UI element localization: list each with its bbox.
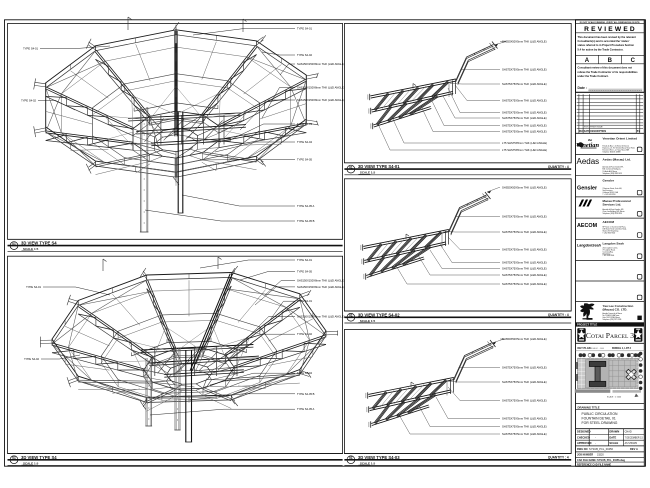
- svg-text:Gensler: Gensler: [603, 179, 615, 183]
- svg-text:APPROVED: APPROVED: [577, 441, 592, 445]
- svg-text:Services Ltd.: Services Ltd.: [603, 203, 622, 207]
- svg-text:Hong Kong: Hong Kong: [603, 253, 611, 255]
- svg-text:TYPE S4-05: TYPE S4-05: [297, 269, 312, 273]
- svg-text:01: 01: [349, 456, 353, 460]
- svg-text:SHS50X50X5mm THK (L&D ANGLE): SHS50X50X5mm THK (L&D ANGLE): [502, 337, 547, 341]
- svg-text:SHS75X75X5mm THK (L&D ANGLE): SHS75X75X5mm THK (L&D ANGLE): [502, 130, 547, 134]
- svg-text:-: -: [14, 461, 15, 465]
- svg-text:Telephone: (853) 81 118888: Telephone: (853) 81 118888: [603, 152, 621, 154]
- svg-text:TYPE S4-05 B: TYPE S4-05 B: [297, 219, 315, 223]
- svg-text:TYPE S4-04: TYPE S4-04: [297, 371, 312, 375]
- svg-text:31520: 31520: [597, 454, 604, 457]
- svg-text:Venetian Orient Limited: Venetian Orient Limited: [603, 137, 638, 141]
- svg-text:SYSUB_PCL_00456: SYSUB_PCL_00456: [589, 447, 613, 451]
- svg-text:SHS75X75X5mm THK (L&D ANGLE): SHS75X75X5mm THK (L&D ANGLE): [502, 99, 547, 103]
- svg-text:TYPE S4-02: TYPE S4-02: [297, 53, 312, 57]
- svg-text:DRAWN: DRAWN: [609, 430, 619, 434]
- svg-text:Gensler: Gensler: [577, 185, 598, 191]
- svg-text:AECOM: AECOM: [577, 223, 598, 229]
- svg-text:DO NOT SCALE DRAWING. VERIFY A: DO NOT SCALE DRAWING. VERIFY ALL DIMENSI…: [580, 21, 641, 24]
- svg-text:AS SHOWN: AS SHOWN: [625, 442, 638, 445]
- svg-text:3D VIEW TYPE S4-02: 3D VIEW TYPE S4-02: [358, 312, 400, 317]
- svg-text:TYPE S4-02: TYPE S4-02: [24, 357, 39, 361]
- svg-text:Causeway Bay,: Causeway Bay,: [603, 251, 614, 253]
- svg-text:SHS75X75X5mm THK (L&D ANGLE): SHS75X75X5mm THK (L&D ANGLE): [502, 399, 547, 403]
- svg-text:AECOM: AECOM: [603, 220, 615, 224]
- svg-text:FOUNTAIN DETAIL 01: FOUNTAIN DETAIL 01: [582, 417, 616, 421]
- svg-text:QUANTITY : 4: QUANTITY : 4: [548, 313, 569, 317]
- svg-text:SCALE 1:5: SCALE 1:5: [23, 247, 39, 251]
- svg-text:SHS75X75X5mm THK (L&D ANGLE): SHS75X75X5mm THK (L&D ANGLE): [502, 282, 547, 286]
- svg-text:FOR STEEL DRAWING: FOR STEEL DRAWING: [582, 421, 618, 425]
- svg-text:SHS150X150X8mm THK (L&D ANGLE): SHS150X150X8mm THK (L&D ANGLE): [297, 315, 345, 319]
- svg-text:01: 01: [349, 165, 353, 169]
- svg-text:SCALE 1:5: SCALE 1:5: [360, 171, 376, 175]
- svg-text:DESCRIPTION: DESCRIPTION: [590, 131, 606, 133]
- svg-text:TYPE S4-01: TYPE S4-01: [297, 26, 312, 30]
- svg-text:T +852 3922 9000: T +852 3922 9000: [603, 233, 616, 235]
- svg-text:TYPE S4-04: TYPE S4-04: [297, 140, 312, 144]
- svg-text:B: B: [608, 58, 613, 64]
- svg-text:C: C: [631, 58, 636, 64]
- svg-text:TYPE S4-03: TYPE S4-03: [297, 122, 312, 126]
- svg-text:SHS150X150X8mm THK (L&D ANGLE): SHS150X150X8mm THK (L&D ANGLE): [297, 86, 345, 90]
- svg-text:Langdon Seah: Langdon Seah: [603, 241, 624, 245]
- svg-text:Telephone: (853) 2833 3023: Telephone: (853) 2833 3023: [603, 173, 622, 175]
- svg-text:Date :: Date :: [578, 86, 587, 90]
- svg-text:TYPE S4-05 B: TYPE S4-05 B: [297, 392, 315, 396]
- svg-text:SCALE 1:5: SCALE 1:5: [360, 319, 376, 323]
- svg-text:REV A: REV A: [630, 447, 638, 451]
- svg-text:(Macau) CO. LTD.: (Macau) CO. LTD.: [603, 307, 628, 311]
- svg-text:LangdonSeah: LangdonSeah: [577, 244, 602, 248]
- svg-text:01: 01: [12, 242, 16, 246]
- svg-text:QUANTITY : 4: QUANTITY : 4: [548, 165, 569, 169]
- svg-text:L75 SHS75X5mm THK (L&D ANGLE): L75 SHS75X5mm THK (L&D ANGLE): [502, 141, 547, 145]
- svg-text:L75 SHS75X5mm THK (L&D ANGLE): L75 SHS75X5mm THK (L&D ANGLE): [502, 148, 547, 152]
- svg-text:SHS75X75X5mm THK (L&D ANGLE): SHS75X75X5mm THK (L&D ANGLE): [502, 124, 547, 128]
- svg-text:REFERENCE CAD FILE NAME: REFERENCE CAD FILE NAME: [577, 463, 612, 466]
- svg-text:TYPE S4-01: TYPE S4-01: [297, 299, 312, 303]
- svg-text:DATE: DATE: [609, 435, 616, 439]
- svg-text:TYPE S4-01: TYPE S4-01: [23, 47, 38, 51]
- svg-text:SHS150X150X8mm THK (L&D ANGLE): SHS150X150X8mm THK (L&D ANGLE): [297, 279, 345, 283]
- svg-text:SHS75X75X5mm THK (L&D ANGLE): SHS75X75X5mm THK (L&D ANGLE): [502, 425, 547, 429]
- svg-text:SHS150X150X8mm THK (L&D ANGLE): SHS150X150X8mm THK (L&D ANGLE): [297, 285, 345, 289]
- svg-text:SHS150X150X8mm THK (L&D ANGLE): SHS150X150X8mm THK (L&D ANGLE): [297, 98, 345, 102]
- svg-text:-: -: [350, 461, 351, 465]
- svg-text:01: 01: [12, 456, 16, 460]
- svg-text:5.4 for action by the Trade Co: 5.4 for action by the Trade Contractor.: [578, 47, 624, 51]
- svg-text:Telephone: (853) 2878 3396: Telephone: (853) 2878 3396: [603, 213, 622, 215]
- svg-text:Telephone: (853) 2871 5339: Telephone: (853) 2871 5339: [603, 319, 622, 321]
- svg-text:REVIEWED: REVIEWED: [584, 26, 637, 33]
- svg-text:DWG NO: DWG NO: [577, 448, 588, 451]
- svg-text:CHAD: CHAD: [625, 431, 632, 434]
- svg-text:SHS75X75X5mm THK (L&D ANGLE): SHS75X75X5mm THK (L&D ANGLE): [502, 267, 547, 271]
- svg-text:TYPE S4-01: TYPE S4-01: [297, 258, 312, 262]
- svg-text:TYPE S4-02: TYPE S4-02: [21, 98, 36, 102]
- svg-text:T +1 415 433 3700: T +1 415 433 3700: [603, 194, 616, 196]
- svg-text:DRAWING TITLE: DRAWING TITLE: [578, 405, 600, 409]
- svg-text:SCALE 1:5: SCALE 1:5: [360, 461, 376, 465]
- svg-text:China Law Building 16/F, Macau: China Law Building 16/F, Macau: [603, 211, 625, 213]
- svg-text:SHS50X50X5mm THK (L&D ANGLE): SHS50X50X5mm THK (L&D ANGLE): [502, 186, 547, 190]
- svg-text:Aedas: Aedas: [577, 157, 600, 166]
- svg-text:Aedas (Macau) Ltd.: Aedas (Macau) Ltd.: [603, 157, 632, 161]
- svg-text:SCALE 1:5: SCALE 1:5: [23, 461, 39, 465]
- svg-text:SCALE : 1:1000: SCALE : 1:1000: [607, 396, 622, 399]
- svg-text:3D VIEW TYPE S4: 3D VIEW TYPE S4: [21, 241, 57, 246]
- svg-text:This document has been revised: This document has been revised by the re…: [578, 35, 636, 39]
- svg-text:SHS75X75X5mm THK (L&D ANGLE): SHS75X75X5mm THK (L&D ANGLE): [502, 261, 547, 265]
- svg-text:TYPE S4-05 A: TYPE S4-05 A: [297, 407, 315, 411]
- svg-text:01: 01: [349, 314, 353, 318]
- svg-text:SHS75X75X5mm THK (L&D ANGLE): SHS75X75X5mm THK (L&D ANGLE): [502, 215, 547, 219]
- svg-text:SHS75X75X5mm THK (L&D ANGLE): SHS75X75X5mm THK (L&D ANGLE): [502, 82, 547, 86]
- svg-text:relieve the Trade Contractor o: relieve the Trade Contractor of its resp…: [578, 70, 639, 74]
- svg-text:SHS75X75X5mm THK (L&D ANGLE): SHS75X75X5mm THK (L&D ANGLE): [502, 380, 547, 384]
- svg-text:SHS75X75X5mm THK (L&D ANGLE): SHS75X75X5mm THK (L&D ANGLE): [502, 248, 547, 252]
- svg-text:PROJECT TITLE: PROJECT TITLE: [577, 323, 597, 327]
- svg-text:JOB NUMBER: JOB NUMBER: [577, 454, 593, 457]
- svg-text:PARCEL 1, LOT 2: PARCEL 1, LOT 2: [612, 347, 632, 350]
- svg-text:SHS75X75X5mm THK (L&D ANGLE): SHS75X75X5mm THK (L&D ANGLE): [502, 417, 547, 421]
- svg-text:CHECKED: CHECKED: [577, 435, 590, 439]
- svg-text:Consultants(s) and is accorded: Consultants(s) and is accorded the 'stat…: [578, 39, 630, 43]
- svg-text:3D VIEW TYPE S4-01: 3D VIEW TYPE S4-01: [358, 164, 400, 169]
- svg-text:KEY PLAN: KEY PLAN: [578, 346, 591, 350]
- svg-text:-: -: [350, 170, 351, 174]
- svg-text:SHS75X75X5mm THK (L&D ANGLE): SHS75X75X5mm THK (L&D ANGLE): [502, 111, 547, 115]
- svg-text:-: -: [350, 319, 351, 323]
- svg-text:SHS75X75X5mm THK (L&D ANGLE): SHS75X75X5mm THK (L&D ANGLE): [502, 366, 547, 370]
- svg-text:3D VIEW TYPE S4: 3D VIEW TYPE S4: [21, 455, 57, 460]
- svg-text:-: -: [14, 247, 15, 251]
- svg-text:TYPE S4-05 A: TYPE S4-05 A: [297, 204, 315, 208]
- svg-text:SCALE 1 : 1000: SCALE 1 : 1000: [591, 347, 604, 350]
- svg-text:SHS75X75X5mm THK (L&D ANGLE): SHS75X75X5mm THK (L&D ANGLE): [502, 273, 547, 277]
- svg-text:TYPE S4-01: TYPE S4-01: [26, 285, 41, 289]
- svg-text:SCALE: SCALE: [609, 441, 618, 445]
- svg-text:SHS75X75X5mm THK (L&D ANGLE): SHS75X75X5mm THK (L&D ANGLE): [502, 230, 547, 234]
- svg-text:DESIGNED: DESIGNED: [577, 430, 591, 434]
- svg-text:under the Trade Contract.: under the Trade Contract.: [578, 74, 609, 78]
- svg-text:T 852 2830 3500: T 852 2830 3500: [603, 255, 615, 257]
- svg-text:TYPE S4-02: TYPE S4-02: [297, 332, 312, 336]
- svg-text:SHS150X150X8mm THK (L&D ANGLE): SHS150X150X8mm THK (L&D ANGLE): [297, 62, 345, 66]
- svg-text:SHS75X75X5mm THK (L&D ANGLE): SHS75X75X5mm THK (L&D ANGLE): [502, 68, 547, 72]
- svg-text:3D VIEW TYPE S4-03: 3D VIEW TYPE S4-03: [358, 455, 400, 460]
- svg-text:SHS50X50X5mm THK (L&D ANGLE): SHS50X50X5mm THK (L&D ANGLE): [502, 40, 547, 44]
- svg-text:Consultant review of this docu: Consultant review of this document does …: [578, 66, 633, 70]
- svg-text:QUANTITY : 4: QUANTITY : 4: [548, 456, 569, 460]
- svg-text:TYPE S4-05: TYPE S4-05: [297, 158, 312, 162]
- svg-text:7 DECEMBER 15: 7 DECEMBER 15: [625, 437, 644, 439]
- svg-text:status referred to in Project: status referred to in Project Procedure …: [578, 43, 635, 47]
- svg-text:PUBLIC CIRCULATION: PUBLIC CIRCULATION: [582, 412, 618, 416]
- svg-text:SHS75X75X5mm THK (L&D ANGLE): SHS75X75X5mm THK (L&D ANGLE): [502, 432, 547, 436]
- svg-text:SHS75X75X5mm THK (L&D ANGLE): SHS75X75X5mm THK (L&D ANGLE): [502, 116, 547, 120]
- svg-text:A: A: [585, 58, 590, 64]
- svg-text:CAD FILE NAME: SYSUB_PCL_004: CAD FILE NAME: SYSUB_PCL_00456.dwg: [577, 459, 625, 462]
- svg-text:BY: BY: [637, 131, 641, 133]
